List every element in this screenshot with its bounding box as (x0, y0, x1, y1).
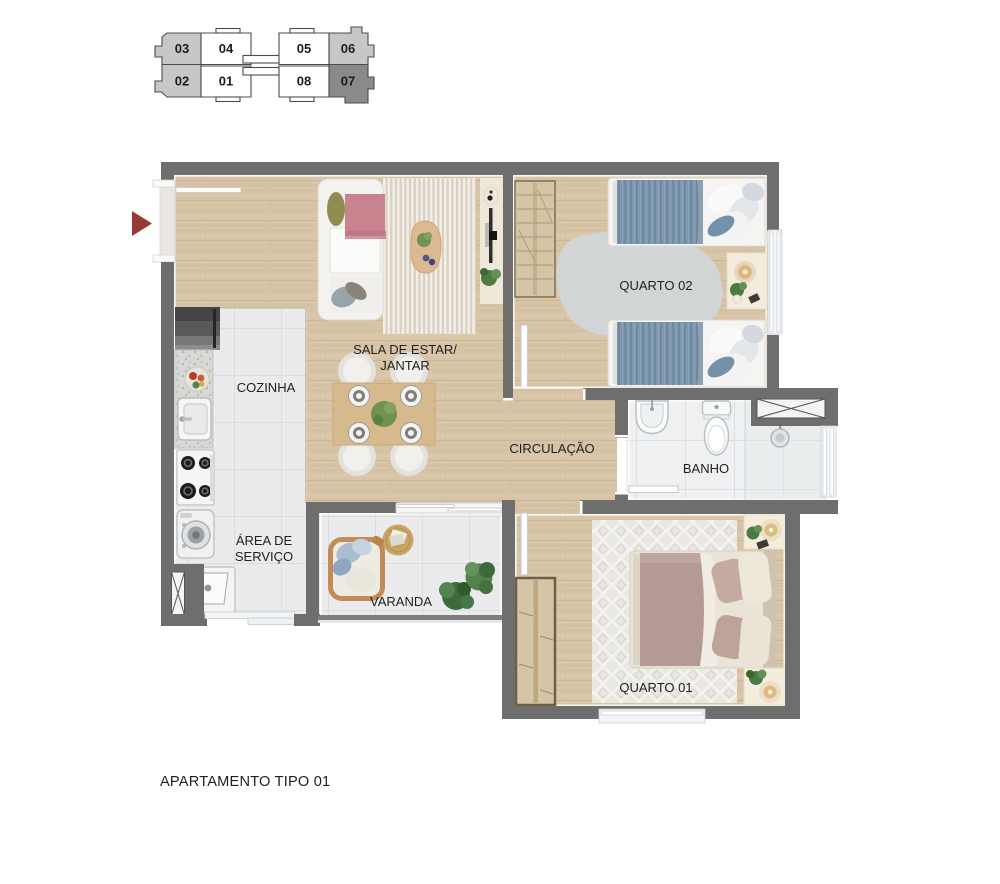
svg-text:07: 07 (341, 74, 355, 89)
svg-text:QUARTO 02: QUARTO 02 (619, 278, 692, 293)
svg-text:02: 02 (175, 74, 189, 89)
svg-text:ÁREA DE: ÁREA DE (236, 533, 293, 548)
svg-text:CIRCULAÇÃO: CIRCULAÇÃO (509, 441, 594, 456)
svg-text:08: 08 (297, 74, 311, 89)
svg-text:SALA DE ESTAR/: SALA DE ESTAR/ (353, 342, 457, 357)
svg-text:APARTAMENTO TIPO 01: APARTAMENTO TIPO 01 (160, 774, 330, 790)
svg-text:VARANDA: VARANDA (370, 594, 432, 609)
svg-text:QUARTO 01: QUARTO 01 (619, 680, 692, 695)
svg-text:COZINHA: COZINHA (237, 380, 296, 395)
svg-text:04: 04 (219, 41, 234, 56)
svg-text:SERVIÇO: SERVIÇO (235, 549, 293, 564)
svg-text:03: 03 (175, 41, 189, 56)
svg-text:BANHO: BANHO (683, 461, 729, 476)
svg-text:06: 06 (341, 41, 355, 56)
svg-text:01: 01 (219, 74, 233, 89)
svg-text:05: 05 (297, 41, 311, 56)
svg-text:JANTAR: JANTAR (380, 358, 430, 373)
